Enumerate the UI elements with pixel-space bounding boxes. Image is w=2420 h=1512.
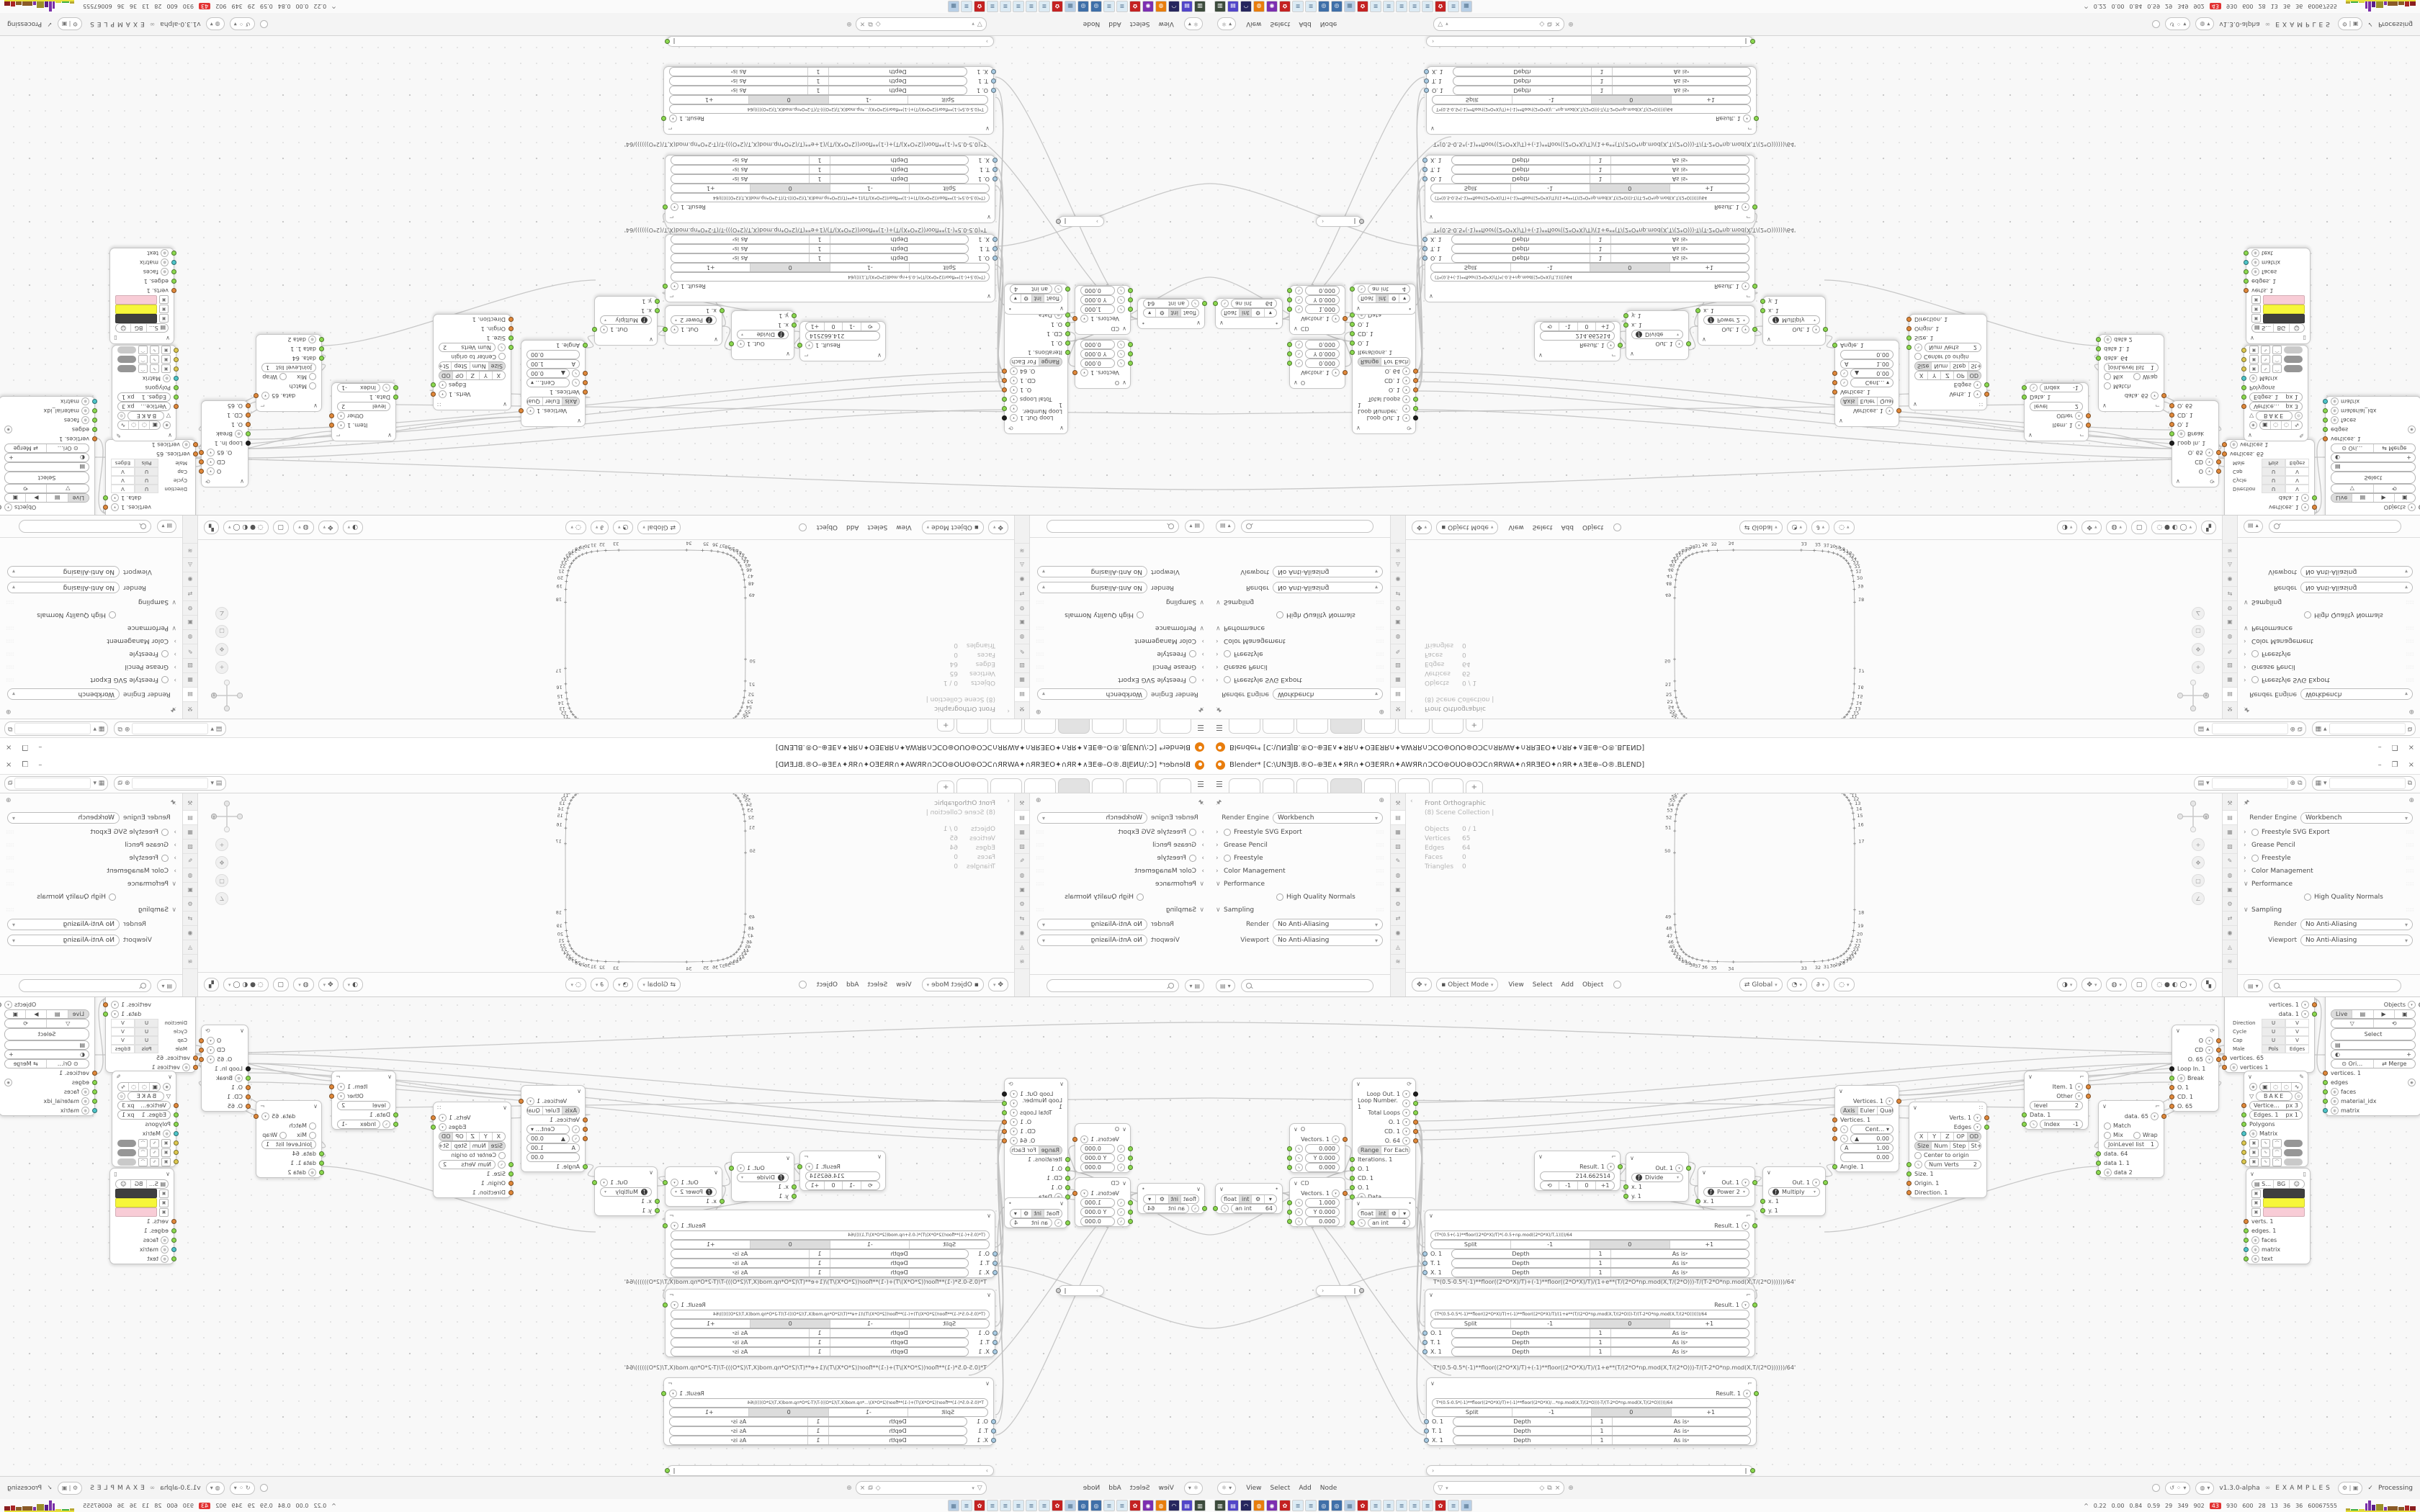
pin-icon[interactable]: ⊕ [125,725,130,732]
node-row[interactable]: ▽⟲ [0,1019,94,1028]
properties-tab-icon-3[interactable]: ▧ [183,840,197,854]
socket[interactable] [1422,158,1428,163]
node-row[interactable]: O. 65▾ [2172,448,2218,457]
node-row[interactable]: vertices. 65 [106,449,195,459]
node-row[interactable]: T. 1Depth1As is ▾ [1425,165,1754,174]
menu-node[interactable]: Node [1320,21,1337,28]
viewport-dropdown[interactable]: No Anti-Aliasing▾ [7,566,120,577]
shading-mode-buttons[interactable]: ◌ ● ◐ ◯▾ [2151,521,2197,534]
socket[interactable] [2241,366,2246,372]
taskbar-app-icon-8[interactable]: ◎ [1318,1,1330,12]
node-row[interactable]: ∿1.000 [1290,1198,1345,1207]
menu-object[interactable]: Object [1582,524,1603,531]
node-row[interactable]: O▾ [2172,1036,2218,1045]
shading-mode-buttons[interactable]: ◌ ● ◐ ◯▾ [223,521,269,534]
collapse-chevron-icon[interactable]: ∨ [649,1169,653,1176]
socket[interactable] [171,251,176,256]
socket[interactable] [92,427,97,432]
socket[interactable] [991,69,996,74]
editor-type-button[interactable]: ⚛▾ [1184,18,1203,31]
socket[interactable] [992,167,998,172]
socket[interactable] [1343,370,1348,375]
socket[interactable] [1359,1288,1364,1293]
editor-type-button[interactable]: ▤▾ [157,520,176,533]
node-row[interactable]: data 1. 1 [256,1158,321,1168]
node-row[interactable]: Loop Number. 1▾ [1353,404,1415,413]
workspace-tab-2[interactable] [1263,778,1294,793]
workspace-tab-1[interactable] [1229,719,1260,734]
socket[interactable] [174,1150,179,1155]
menu-select[interactable]: Select [1533,981,1553,989]
collapse-chevron-icon[interactable]: ∨ [240,1027,244,1034]
socket[interactable] [992,1340,998,1345]
taskbar-app-icon-0[interactable]: ▥ [1214,1,1226,12]
node-row[interactable]: Result. 1▾ [665,1300,995,1310]
node-row[interactable]: ⟲-10+1 [800,1181,885,1190]
node-row[interactable]: Objects▾ [2326,1000,2420,1009]
node-row[interactable]: ◍material_idx [2326,406,2420,415]
node-row[interactable]: Total Loops▾ [1353,1108,1415,1117]
node-row[interactable]: O. 64▾ [1005,366,1067,376]
socket[interactable] [92,1099,97,1104]
socket[interactable] [319,356,324,361]
socket[interactable] [508,1162,514,1167]
viewport-dropdown[interactable]: No Anti-Aliasing▾ [7,935,120,946]
socket[interactable] [92,399,97,404]
loop-out[interactable]: ∨⟳O▾CD▾O. 65▾Loop In. 1◍BreakO. 1CD. 1O.… [201,400,248,487]
restore-button[interactable]: ❐ [2392,743,2398,751]
node-row[interactable]: ∿Num Verts2 [434,1160,511,1169]
socket[interactable] [329,423,334,428]
node-row[interactable]: O. 1 [1353,338,1415,348]
sverchok-node-editor[interactable]: ∨•floatint⚙▾∿an int64∨OVectors. 1▾∿0.000… [1210,997,2420,1476]
socket[interactable] [1422,1251,1428,1256]
taskbar-app-icon-6[interactable]: ≣ [1116,1500,1128,1511]
socket[interactable] [1424,1438,1429,1443]
node-row[interactable]: Result. 1▾ [800,341,885,350]
node-row[interactable]: ▤ [2326,1040,2420,1050]
node-row[interactable]: Loop Number. 1▾ [1005,404,1067,413]
taskbar-icons[interactable]: ▥▤◠◍◉✿≣≣◎◎▦✿≣≣≣≣≣✿≣▦ [1214,1,1474,12]
scene-name-field[interactable] [132,778,208,789]
node-row[interactable]: MixWrap [2099,372,2164,382]
socket[interactable] [171,1219,176,1224]
socket[interactable] [1002,1120,1007,1125]
properties-tab-icon-2[interactable]: ▦ [1391,672,1405,687]
node-row[interactable]: O. 1 [2172,420,2218,429]
collapse-chevron-icon[interactable]: ∨ [1767,336,1771,343]
navigation-gizmo[interactable]: Y [211,801,243,832]
socket[interactable] [1213,301,1218,306]
taskbar-app-icon-14[interactable]: ≣ [1013,1500,1024,1511]
socket[interactable] [2323,1089,2328,1094]
collapse-chevron-icon[interactable]: ∨ [1059,425,1064,431]
node-row[interactable]: ƒDivide▾ [732,1173,794,1182]
socket[interactable] [991,1428,996,1434]
properties-tab-icon-4[interactable]: ✎ [1391,644,1405,658]
property-section-sampling[interactable]: ∨Sampling∷∷ [1030,904,1210,917]
socket[interactable] [1424,1428,1429,1434]
properties-tab-icon-4[interactable]: ✎ [1015,644,1029,658]
collapse-chevron-icon[interactable]: ∨ [987,214,991,220]
node-row[interactable]: ∿an int64 [1138,1204,1204,1213]
node-row[interactable]: ⟲-10+1 [1535,322,1620,331]
properties-tab-icon-11[interactable]: ≋ [183,543,197,557]
properties-tab-icon-1[interactable]: ▤ [2223,687,2237,701]
pin-icon[interactable]: ⊕ [1036,797,1041,809]
collapse-chevron-icon[interactable]: ∨ [503,401,507,408]
node-row[interactable]: Center to origin [434,352,511,361]
formula-a[interactable]: ∨⌐Result. 1▾(T*(0.5+(-1)**floor((2*O*X)/… [1425,234,1755,302]
socket[interactable] [2241,348,2246,353]
collapse-chevron-icon[interactable]: ∨ [2248,1074,2252,1080]
properties-tab-icon-10[interactable]: ◬ [2223,557,2237,572]
collapse-chevron-icon[interactable]: ∨ [387,1074,392,1080]
node-row[interactable]: ▽BAKE◎ [2244,1092,2308,1101]
node-row[interactable]: Direction. 1 [434,315,511,324]
node-row[interactable]: ∿Num Verts2 [1909,1160,1986,1169]
workspace-tab-5[interactable] [1364,719,1396,734]
node-row[interactable]: ◉▣◌◌∿ [2244,420,2308,430]
socket[interactable] [1752,1302,1757,1308]
shading-mode-buttons[interactable]: ◌ ● ◐ ◯▾ [2151,978,2197,991]
socket[interactable] [174,395,179,400]
node-row[interactable]: Verts. 1▾ [434,1113,511,1122]
node-row[interactable]: ▣ [2246,295,2310,305]
node-row[interactable]: Result. 1▾ [1427,1389,1756,1398]
properties-tab-icon-6[interactable]: ▣ [2223,883,2237,897]
node-row[interactable]: O. 64▾ [1005,1136,1067,1146]
property-section-color-management[interactable]: ›Color Management∷∷ [0,634,182,647]
properties-tab-icon-10[interactable]: ◬ [1391,557,1405,572]
node-row[interactable]: Live▤▶▣ [0,1009,94,1019]
node-row[interactable]: X. 1Depth1As is ▾ [665,1347,995,1356]
socket[interactable] [1422,1270,1428,1275]
property-section-freestyle[interactable]: ›Freestyle∷∷ [1030,647,1210,660]
node-row[interactable]: vertices. 1 [2326,434,2420,444]
properties-tab-icon-3[interactable]: ▧ [1391,840,1405,854]
socket[interactable] [663,1302,668,1308]
property-section-performance[interactable]: ∨Performance∷∷ [1030,621,1210,634]
node-tree-selector[interactable]: ▽▾ ◇ ⧉ × [856,17,987,31]
socket[interactable] [729,341,734,346]
list-join[interactable]: ∨⌐data. 65▾MatchMixWrapJoinLevel list1da… [2098,1100,2164,1178]
taskbar-app-icon-16[interactable]: ≣ [1422,1,1433,12]
socket[interactable] [2241,385,2246,390]
taskbar-app-icon-3[interactable]: ◍ [1155,1,1167,12]
socket[interactable] [797,343,802,348]
node-row[interactable]: ◍text [110,1254,174,1264]
properties-tab-icon-7[interactable]: ⚙ [2223,600,2237,615]
node-row[interactable]: ◍faces [2246,267,2310,276]
socket[interactable] [1065,1176,1070,1181]
editor-type-button[interactable]: ▤▾ [157,979,176,992]
mode-dropdown[interactable]: ▪ Object Mode▾ [1436,521,1498,534]
node-row[interactable]: Loop In. 1 [202,438,248,448]
properties-tab-icon-8[interactable]: ⇄ [2223,586,2237,600]
socket[interactable] [1906,326,1912,331]
collapse-chevron-icon[interactable]: ∨ [1767,1169,1771,1176]
close-icon[interactable]: × [1555,1485,1561,1492]
render-dropdown[interactable]: No Anti-Aliasing▾ [2300,582,2413,593]
menu-view[interactable]: View [1246,21,1261,28]
socket[interactable] [2216,1057,2221,1062]
socket[interactable] [1752,1180,1757,1185]
node-row[interactable]: O. 65 [202,1102,248,1111]
properties-search-input[interactable] [1047,979,1179,992]
node-row[interactable]: ∿Cent… ▾ [1835,378,1899,387]
properties-tab-icon-0[interactable]: ⚒ [1391,796,1405,811]
node-row[interactable]: X. 1Depth1As is ▾ [665,1268,995,1277]
property-section-performance[interactable]: ∨Performance∷∷ [1030,878,1210,891]
node-row[interactable]: O. 1▾ [1005,385,1067,395]
socket[interactable] [992,1270,998,1275]
node-row[interactable]: ▣∿⌒ [112,1138,176,1148]
node-row[interactable]: Total Loops▾ [1005,1108,1067,1117]
socket[interactable] [193,451,198,456]
property-section-freestyle[interactable]: ›Freestyle∷∷ [1030,852,1210,865]
socket[interactable] [174,1112,179,1117]
socket[interactable] [1413,415,1418,420]
taskbar-app-icon-19[interactable]: ▦ [948,1,959,12]
node-row[interactable]: Out. 1▾ [1626,339,1688,348]
node-row[interactable]: data 1. 1 [256,344,321,354]
node-tree-selector[interactable]: ▽▾ ◇ ⧉ × [856,1481,987,1495]
taskbar-app-icon-8[interactable]: ◎ [1318,1500,1330,1511]
collapse-chevron-icon[interactable]: ∨ [985,125,990,132]
node-row[interactable]: ∿▲0.00 [521,369,585,378]
node-row[interactable]: Select [2326,1028,2420,1040]
properties-tab-icon-6[interactable]: ▣ [1015,615,1029,629]
socket[interactable] [1128,288,1133,293]
socket[interactable] [2312,1002,2317,1007]
render-dropdown[interactable]: No Anti-Aliasing▾ [1037,582,1147,593]
property-section-performance[interactable]: ∨Performance∷∷ [0,621,182,634]
node-row[interactable]: CD. 1▾ [1353,1127,1415,1136]
socket[interactable] [1422,256,1428,261]
node-row[interactable]: x. 1 [1626,1182,1688,1192]
node-row[interactable]: A1.00 [1835,359,1899,369]
socket[interactable] [1065,1166,1070,1171]
socket[interactable] [992,158,998,163]
socket[interactable] [171,288,176,293]
node-row[interactable]: ▤ S…BG☺ [2246,1179,2310,1189]
socket[interactable] [2222,1056,2227,1061]
line-gen[interactable]: ∨∷Verts. 1▾Edges▾XYZOPODSizeNumStepSt+Si… [433,314,511,410]
xray-toggle-button[interactable]: ▢ [2131,978,2148,991]
taskbar-app-icon-9[interactable]: ◎ [1331,1500,1343,1511]
node-row[interactable]: Split-10+1 [1427,95,1756,104]
properties-tab-icon-9[interactable]: ◉ [1015,926,1029,940]
socket[interactable] [103,1002,108,1007]
navigation-gizmo[interactable]: Y [211,680,243,711]
properties-tab-icon-2[interactable]: ▦ [1015,825,1029,840]
node-row[interactable]: x. 1 [665,1197,722,1206]
socket[interactable] [655,308,660,313]
number-64[interactable]: ∨•floatint⚙▾∿an int64 [1137,1183,1205,1214]
node-row[interactable]: ◍data 2 [256,1168,321,1177]
socket[interactable] [1422,1331,1428,1336]
node-row[interactable]: ∿0.000 [1290,1163,1345,1172]
workspace-tab-2[interactable] [1126,719,1157,734]
properties-tab-icon-10[interactable]: ◬ [1015,557,1029,572]
properties-tab-icon-11[interactable]: ≋ [1015,543,1029,557]
collapse-chevron-icon[interactable]: ∨ [2228,514,2233,515]
node-row[interactable]: ◍Matrix [2244,1129,2308,1138]
socket[interactable] [1413,387,1418,392]
node-row[interactable]: y. 1 [1626,1192,1688,1201]
node-row[interactable]: CD▾ [202,457,248,467]
node-row[interactable]: X. 1Depth1As is ▾ [1425,1268,1754,1277]
socket[interactable] [519,408,524,413]
math-divide[interactable]: ∨Out. 1▾ƒDivide▾x. 1y. 1 [731,310,794,360]
close-icon[interactable]: × [860,1485,866,1492]
node-row[interactable]: O. 1Depth1As is ▾ [1425,1249,1754,1259]
properties-tab-icon-3[interactable]: ▧ [1391,658,1405,672]
viewer-stethoscope[interactable]: ∨▯▤ S…BG☺▣▣▣verts. 1edges. 1◍faces◍matri… [109,1168,174,1264]
snap-magnet-button[interactable]: ∂▾ [591,521,609,534]
collapse-chevron-icon[interactable]: ∨ [1356,425,1361,431]
sverchok-node-editor[interactable]: ∨•floatint⚙▾∿an int64∨OVectors. 1▾∿0.000… [1210,36,2420,515]
node-row[interactable]: ∿Num Verts2 [1909,343,1986,352]
node-row[interactable]: Vectors. 1▾ [1290,1189,1345,1198]
node-row[interactable]: Result. 1▾ [1425,1221,1754,1230]
node-row[interactable]: CD. 1 [1353,1174,1415,1183]
collapse-chevron-icon[interactable]: ∨ [503,1104,507,1111]
node-row[interactable]: MixWrap [256,372,321,382]
node-row[interactable]: Other▾ [2025,411,2088,420]
node-row[interactable]: ∿0.000 [1290,1217,1345,1226]
socket[interactable] [1056,1288,1061,1293]
node-row[interactable]: Vectors. 1▾ [1075,314,1130,323]
taskbar-app-icon-2[interactable]: ◠ [1240,1,1252,12]
section-checkbox[interactable] [2251,855,2259,862]
socket[interactable] [329,413,334,418]
property-option[interactable]: High Quality Normals [1210,891,1390,904]
node-row[interactable]: floatint⚙▾ [1216,1194,1282,1204]
snap-settings-button[interactable]: ↺ ⁘▾ [230,1482,255,1495]
socket[interactable] [1413,397,1418,402]
viewlayer-name-field[interactable] [14,778,91,789]
socket[interactable] [1413,1138,1418,1143]
socket[interactable] [174,357,179,362]
snap-settings-button[interactable]: ↺ ⁘▾ [2165,1482,2190,1495]
workspace-tab-6[interactable] [1398,719,1430,734]
node-row[interactable]: Total Loops▾ [1005,395,1067,404]
minimize-button[interactable]: – [38,743,42,751]
node-row[interactable]: Item. 1▾ [2025,1082,2088,1092]
socket[interactable] [1760,1208,1765,1213]
overlays-button[interactable]: ◍▾ [293,521,313,534]
socket[interactable] [1128,1210,1133,1215]
node-row[interactable]: O. 1▾ [1353,1117,1415,1127]
socket[interactable] [655,299,660,304]
socket[interactable] [1072,1137,1077,1142]
taskbar-app-icon-5[interactable]: ✿ [1279,1,1291,12]
socket[interactable] [393,1122,398,1127]
math-multiply[interactable]: ∨Out. 1▾ƒMultiply▾x. 1y. 1 [594,296,658,346]
close-button[interactable]: × [2408,761,2414,769]
node-row[interactable]: ⊙ Ori…⇄ Merge [2326,444,2420,453]
node-row[interactable]: ▣ [2246,305,2310,314]
socket[interactable] [2086,423,2091,428]
node-row[interactable]: data 1. 1 [2099,344,2164,354]
collapse-chevron-icon[interactable]: ∨ [187,514,192,515]
properties-tab-icon-6[interactable]: ▣ [2223,615,2237,629]
node-row[interactable]: O. 1 [2172,1083,2218,1092]
node-row[interactable]: Split-10+1 [664,95,993,104]
socket[interactable] [1002,406,1007,411]
restore-button[interactable]: ❐ [22,743,28,751]
node-row[interactable]: ▣∿⌒ [2244,1138,2308,1148]
node-row[interactable]: ∿Num Verts2 [434,343,511,352]
node-row[interactable]: Polygons [112,1120,176,1129]
formula-c[interactable]: ∨⌐Result. 1▾T*(0.5-0.5*(-1)**floor((2*O*… [1426,1377,1757,1446]
socket[interactable] [246,431,251,436]
node-row[interactable]: data. 65▾ [256,1112,321,1121]
node-row[interactable]: ƒDivide▾ [1626,1173,1688,1182]
node-row[interactable]: ƒMultiply▾ [595,1187,657,1197]
vector-in-cd[interactable]: ∨CDVectors. 1▾∿1.000∿Y 0.000∿0.000 [1289,1177,1345,1227]
node-row[interactable]: y. 1 [732,1192,794,1201]
node-row[interactable]: Match [2099,1121,2164,1130]
taskbar-app-icon-4[interactable]: ◉ [1142,1,1154,12]
node-row[interactable]: CD. 1 [2172,1092,2218,1102]
node-row[interactable]: Vertice…px 3 [112,1101,176,1110]
properties-tab-icon-7[interactable]: ⚙ [1391,600,1405,615]
node-row[interactable]: Center to origin [1909,352,1986,361]
node-row[interactable]: O. 1 [1353,320,1415,329]
workspace-tab-4[interactable] [1058,719,1090,734]
node-row[interactable]: Polygons [2244,383,2308,392]
socket[interactable] [1750,1468,1755,1473]
node-row[interactable]: Iterations. 1 [1005,1155,1067,1164]
section-checkbox[interactable] [2251,650,2259,657]
menu-add[interactable]: Add [1561,981,1574,989]
node-row[interactable]: Loop Number. 1▾ [1353,1099,1415,1108]
properties-tab-icon-8[interactable]: ⇄ [1015,586,1029,600]
socket[interactable] [992,237,998,242]
workspace-tab-3[interactable] [1092,719,1124,734]
property-section-grease-pencil[interactable]: ›Grease Pencil∷∷ [1210,660,1390,673]
workspace-tab-3[interactable] [1296,719,1328,734]
vector-in-o[interactable]: ∨OVectors. 1▾∿0.000∿Y 0.000∿0.000 [1289,339,1345,389]
properties-tab-icon-9[interactable]: ◉ [1391,926,1405,940]
socket[interactable] [2086,1094,2091,1099]
viewport-dropdown[interactable]: No Anti-Aliasing▾ [1273,566,1383,577]
socket[interactable] [1424,88,1429,93]
node-row[interactable]: ∿0.000 [1075,1163,1130,1172]
socket[interactable] [2241,1159,2246,1164]
socket[interactable] [2022,1122,2027,1127]
section-checkbox[interactable] [2251,676,2259,683]
node-row[interactable]: Iterations. 1 [1005,348,1067,357]
node-row[interactable]: O. 1 [1005,1164,1067,1174]
render-dropdown[interactable]: No Anti-Aliasing▾ [7,919,120,930]
math-power[interactable]: ∨Out. 1▾ƒPower 2▾x. 1 [1698,1166,1755,1207]
socket[interactable] [1287,1165,1292,1170]
property-section-freestyle[interactable]: ›Freestyle∷∷ [0,852,182,865]
node-row[interactable]: JoinLevel list1 [2099,1140,2164,1149]
socket[interactable] [1623,313,1628,318]
overlays-button[interactable]: ◍▾ [2106,521,2126,534]
property-section-color-management[interactable]: ›Color Management∷∷ [0,865,182,878]
tree-console-buttons[interactable]: ⚙ | ▣ [58,1482,83,1495]
vector-in-cd[interactable]: ∨CDVectors. 1▾∿1.000∿Y 0.000∿0.000 [1289,285,1345,335]
node-row[interactable]: O. 1 [1353,1183,1415,1192]
socket[interactable] [92,436,97,441]
taskbar-app-icon-4[interactable]: ◉ [1266,1,1278,12]
